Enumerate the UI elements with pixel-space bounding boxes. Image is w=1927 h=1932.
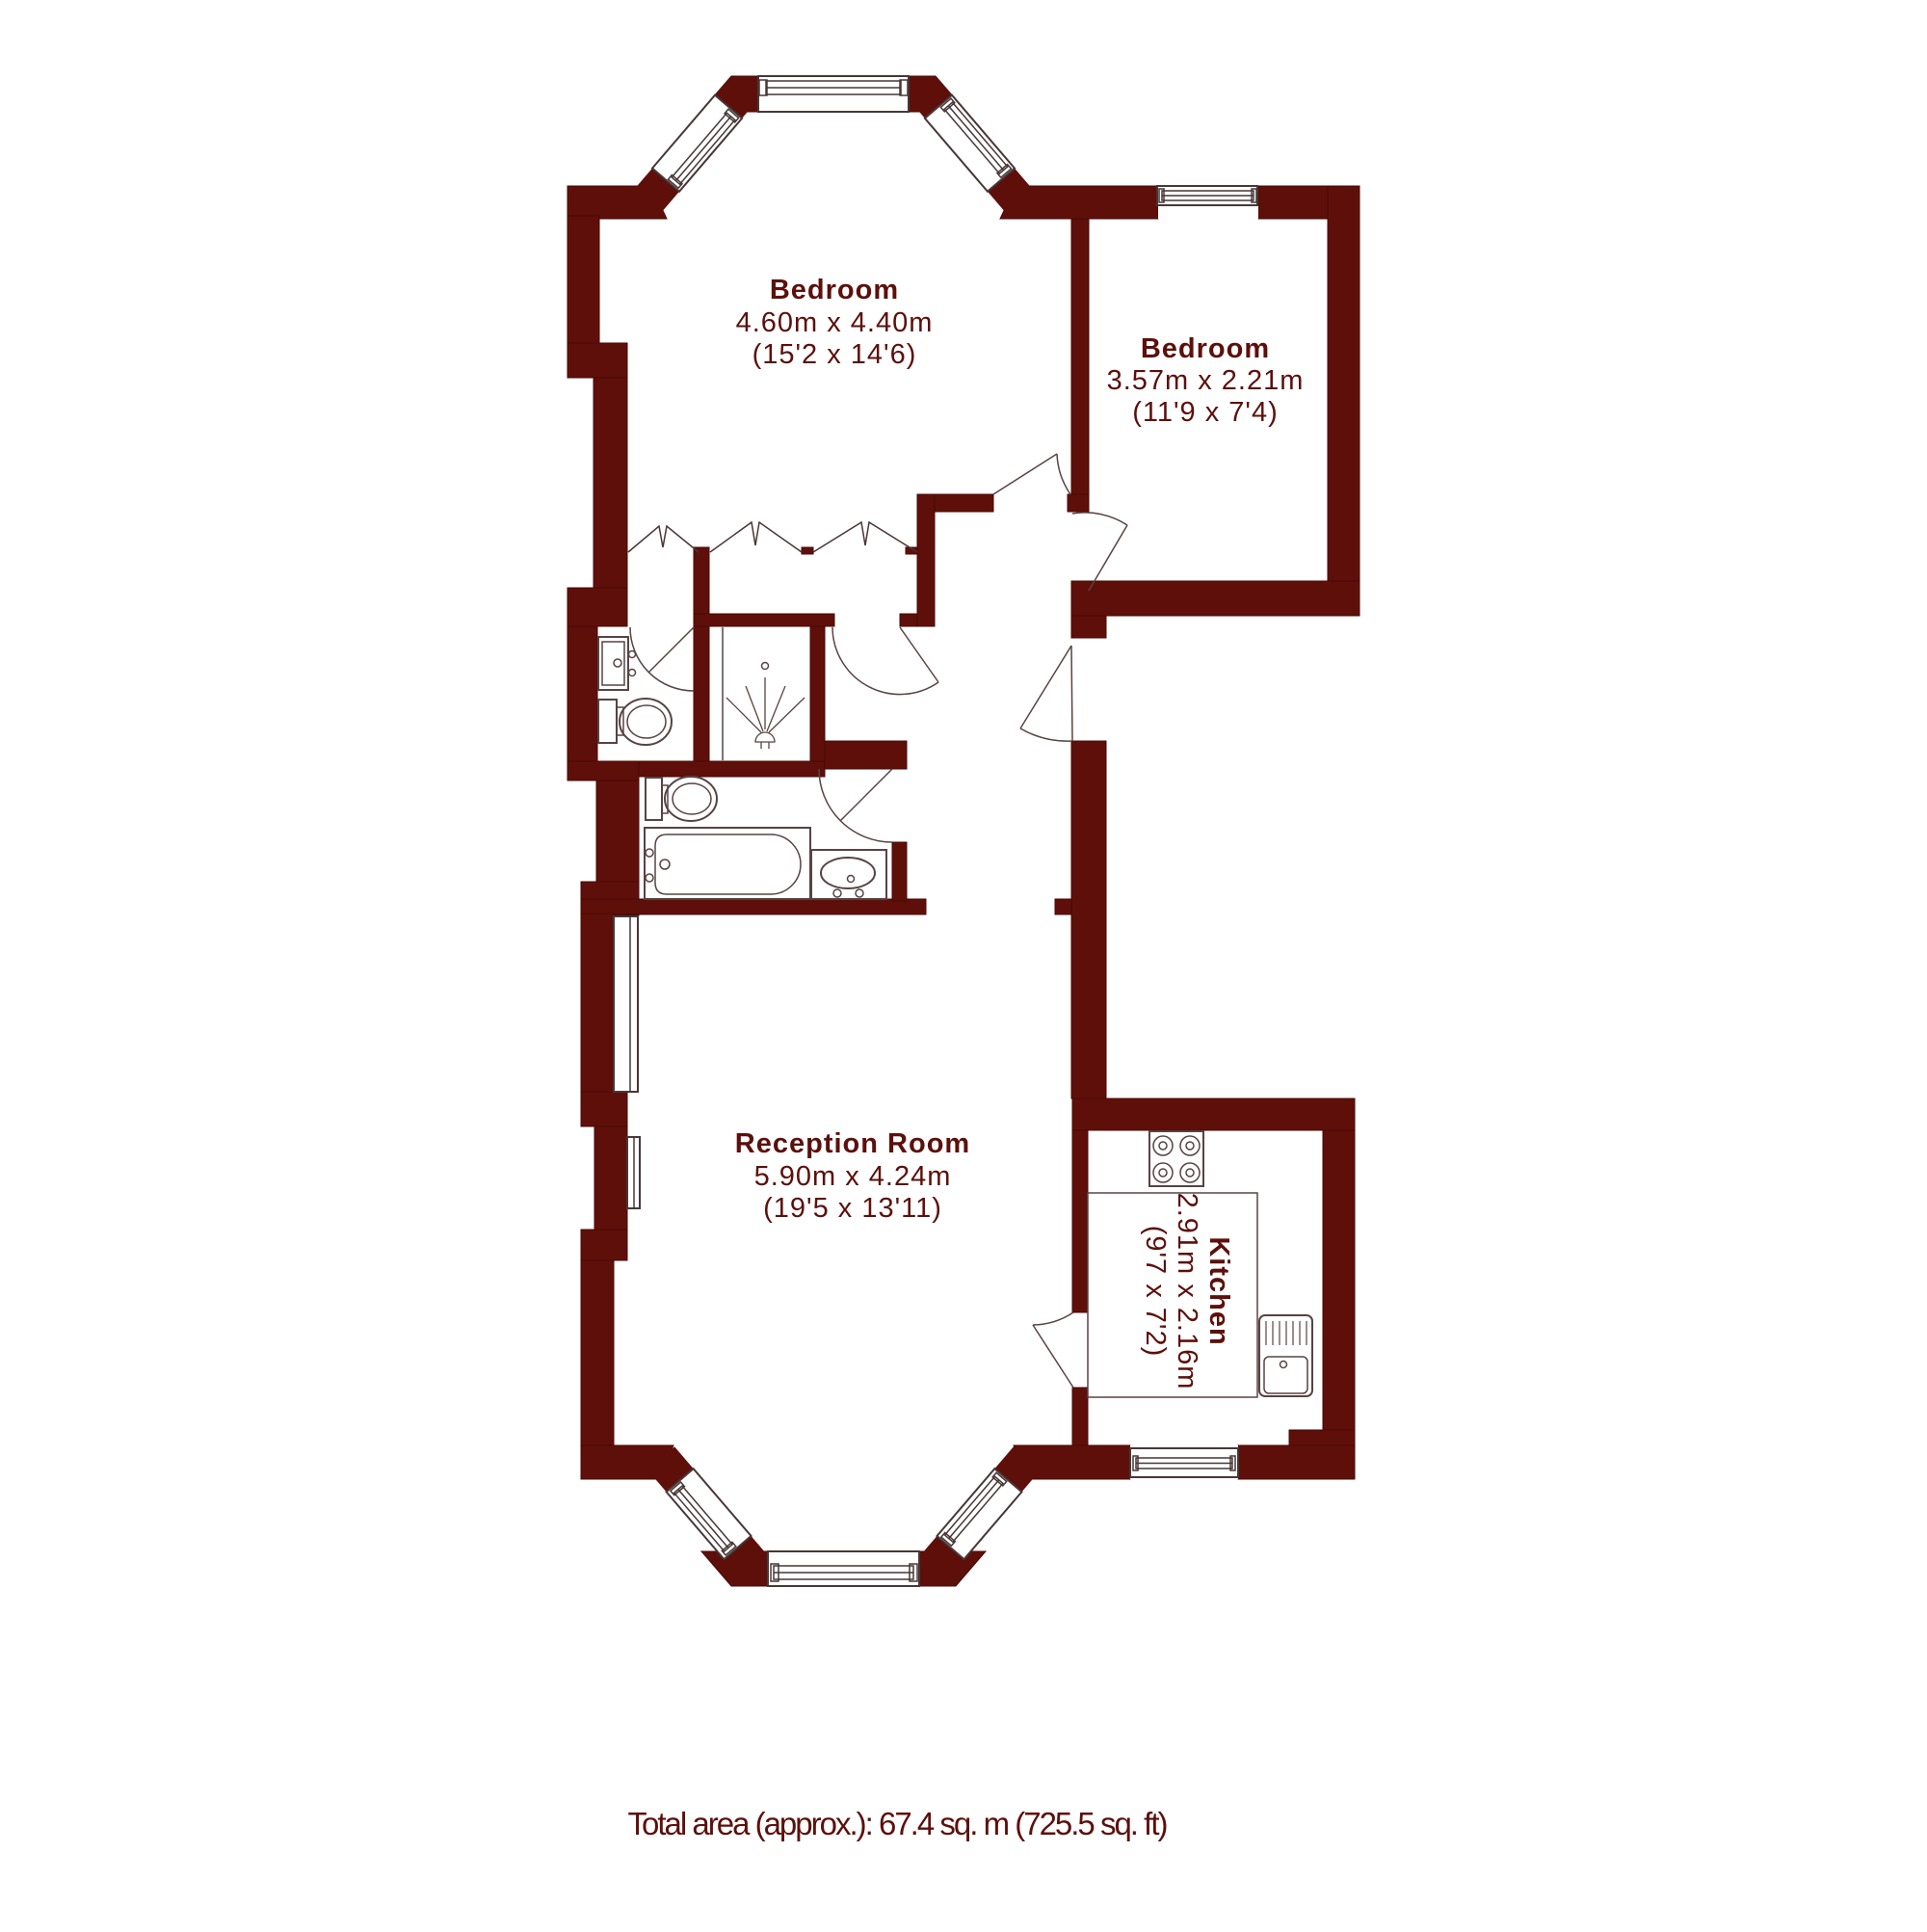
svg-text:(19'5 x 13'11): (19'5 x 13'11)	[763, 1193, 942, 1224]
svg-text:2.91m x 2.16m: 2.91m x 2.16m	[1172, 1193, 1202, 1390]
svg-text:Total area (approx.): 67.4 sq.: Total area (approx.): 67.4 sq. m (725.5 …	[628, 1806, 1167, 1841]
svg-text:Kitchen: Kitchen	[1203, 1236, 1234, 1345]
svg-text:(11'9 x 7'4): (11'9 x 7'4)	[1132, 397, 1279, 428]
svg-text:Bedroom: Bedroom	[1141, 333, 1270, 364]
svg-text:3.57m x 2.21m: 3.57m x 2.21m	[1107, 365, 1305, 396]
svg-text:(9'7 x 7'2): (9'7 x 7'2)	[1140, 1226, 1171, 1358]
svg-text:Reception Room: Reception Room	[735, 1128, 970, 1159]
svg-text:4.60m x 4.40m: 4.60m x 4.40m	[736, 307, 934, 338]
svg-text:5.90m x 4.24m: 5.90m x 4.24m	[754, 1161, 952, 1192]
svg-text:(15'2 x 14'6): (15'2 x 14'6)	[752, 339, 917, 370]
svg-text:Bedroom: Bedroom	[770, 275, 899, 305]
